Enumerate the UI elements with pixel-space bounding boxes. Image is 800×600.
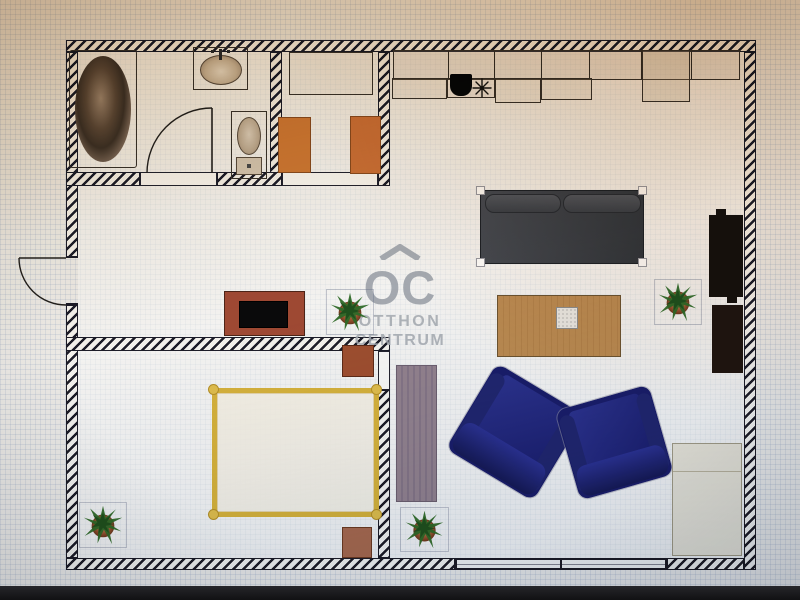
plant-icon (80, 503, 126, 547)
media-unit-tab-bottom (727, 297, 737, 303)
wall-bottom-right (667, 558, 744, 570)
orange-wardrobe-right (350, 116, 381, 174)
counter-divider (691, 51, 692, 79)
media-unit-tab-top (716, 209, 726, 215)
selection-handle (638, 258, 647, 267)
faucet (219, 49, 222, 60)
screen-photo: OC OTTHON CENTRUM (0, 0, 800, 600)
window-frame-left (455, 560, 457, 568)
striped-runner-rug (396, 365, 437, 502)
counter-divider (494, 51, 495, 79)
toilet-flush-button (247, 164, 251, 168)
wall-right (744, 52, 756, 570)
selection-handle (476, 258, 485, 267)
counter-box-mid (495, 78, 541, 103)
counter-box-left (392, 78, 447, 99)
counter-divider (541, 51, 542, 79)
white-side-table (556, 307, 578, 329)
low-wardrobe-beige (672, 443, 742, 556)
entrance-jamb-top (66, 256, 78, 258)
counter-divider (448, 51, 449, 79)
media-unit-lower (712, 305, 743, 373)
tv-screen (239, 301, 288, 328)
potted-plant-bedroom (79, 502, 127, 548)
entry-storage-door-sill (282, 172, 378, 186)
faucet-knob-left (211, 50, 214, 53)
storage-cabinet-outline (289, 52, 373, 95)
sofa-cushion-left (485, 194, 561, 213)
toilet-bowl (237, 117, 261, 155)
plant-icon (327, 290, 373, 334)
house-roof-icon (378, 244, 422, 260)
wall-bathroom-bottom-a (66, 172, 140, 186)
counter-divider (589, 51, 590, 79)
bed-post (371, 384, 382, 395)
selection-handle (638, 186, 647, 195)
plant-icon (655, 280, 701, 324)
plant-icon (401, 508, 448, 551)
gray-sofa (480, 190, 644, 264)
wall-bedroom-right (378, 390, 390, 558)
bathroom-door-sill (140, 172, 217, 186)
nightstand-upper (342, 345, 374, 377)
potted-plant-living (654, 279, 702, 325)
nightstand-lower (342, 527, 372, 558)
window-frame-right (665, 560, 667, 568)
bed-post (208, 384, 219, 395)
kitchen-cabinet-deep (642, 50, 690, 102)
kitchen-sink (450, 74, 472, 96)
bed-post (208, 509, 219, 520)
sofa-cushion-right (563, 194, 641, 213)
potted-plant-lower (400, 507, 449, 552)
entrance-jamb-bottom (66, 303, 78, 305)
potted-plant-hallway (326, 289, 374, 335)
selection-handle (476, 186, 485, 195)
media-unit-upper (709, 215, 743, 297)
window-frame-middle (560, 560, 562, 568)
orange-wardrobe-left (278, 117, 311, 173)
double-bed (212, 388, 379, 517)
wall-bottom-left (66, 558, 455, 570)
wardrobe-shelf-line (673, 471, 741, 472)
screen-bottom-band (0, 586, 800, 600)
bathtub-basin (75, 56, 131, 162)
counter-box-right (541, 78, 592, 100)
faucet-knob-right (227, 50, 230, 53)
bottom-window-band (455, 558, 667, 570)
bed-post (371, 509, 382, 520)
